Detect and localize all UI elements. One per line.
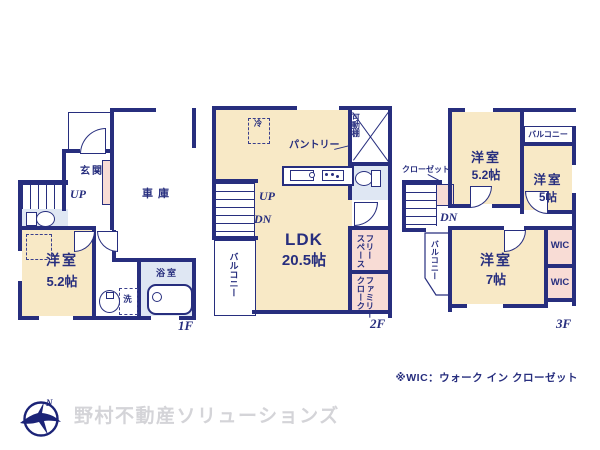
window xyxy=(18,250,22,282)
laundry-label: 洗 xyxy=(120,294,135,305)
svg-text:N: N xyxy=(45,398,53,408)
wic-2-label: WIC xyxy=(548,277,572,289)
garage-label: 車庫 xyxy=(134,188,182,201)
balcony-top-label: バルコニー xyxy=(526,130,570,140)
wall xyxy=(572,126,576,306)
stairs-up-label-2f: UP xyxy=(259,190,275,203)
family-closet-label: ファミリークローク xyxy=(356,276,374,312)
stairs-down-label-2f: DN xyxy=(254,213,271,226)
wall xyxy=(18,180,68,184)
window xyxy=(38,316,74,320)
entrance-label: 玄関 xyxy=(72,166,112,178)
wic-note: ※WIC：ウォーク イン クローゼット xyxy=(396,373,578,384)
wall xyxy=(520,210,524,214)
wall xyxy=(448,226,504,230)
family-closet-col1: ファミリー xyxy=(365,276,374,312)
stairs-down-label-3f: DN xyxy=(440,211,457,224)
wall xyxy=(112,258,196,262)
bathtub-drain-icon xyxy=(152,292,162,302)
wall xyxy=(544,264,576,268)
stairs-2f xyxy=(216,183,255,236)
wall xyxy=(448,108,452,208)
free-space-col2: スペース xyxy=(356,234,365,270)
wall xyxy=(212,106,216,240)
bedroom2-label: 洋室 xyxy=(528,174,568,188)
ldk-size-label: 20.5帖 xyxy=(266,252,342,270)
wall xyxy=(192,258,196,320)
free-space-label: フリースペース xyxy=(356,234,374,270)
wall xyxy=(212,236,258,240)
floor-1-label: 1F xyxy=(178,319,193,333)
wall xyxy=(348,270,392,274)
wall xyxy=(548,210,576,214)
floor-2-label: 2F xyxy=(370,317,385,331)
bedroom3-size: 7帖 xyxy=(466,272,526,287)
family-closet-col2: クローク xyxy=(356,276,365,312)
bedroom1-label: 洋室 xyxy=(456,150,516,165)
stairs-3f xyxy=(406,184,437,226)
stove-burner-icon xyxy=(331,173,334,176)
wall xyxy=(62,149,80,153)
floor-plan-sheet: 玄関 車庫 UP 洋室 5.2帖 浴室 洗 1F xyxy=(0,0,600,450)
fridge-label: 冷 xyxy=(248,119,268,129)
free-space-col1: フリー xyxy=(365,234,374,270)
wic-1-label: WIC xyxy=(548,240,572,252)
wall xyxy=(492,204,524,208)
bedroom-size-1f: 5.2帖 xyxy=(30,274,94,289)
wall xyxy=(348,226,392,230)
wall xyxy=(348,162,392,166)
wall xyxy=(192,108,196,148)
wall xyxy=(448,204,470,208)
wall xyxy=(388,106,392,318)
bedroom-label-1f: 洋室 xyxy=(30,252,94,268)
shelf-label: 可動棚 xyxy=(351,113,359,161)
washbasin-faucet-icon xyxy=(106,292,114,299)
window xyxy=(466,304,504,308)
wall xyxy=(18,226,96,230)
wall xyxy=(402,180,406,232)
ldk-label: LDK xyxy=(270,230,338,250)
bedroom52-door-arc xyxy=(470,186,492,208)
wall xyxy=(402,180,442,184)
bedroom2-size: 5帖 xyxy=(528,192,568,205)
balcony-label-2f: バルコニー xyxy=(228,252,237,306)
window xyxy=(296,106,340,110)
wall xyxy=(448,226,452,312)
stove-burner-icon xyxy=(336,175,339,178)
wall xyxy=(544,298,576,302)
balcony-left-label: バルコニー xyxy=(430,240,438,290)
wall xyxy=(212,179,258,183)
window xyxy=(464,108,494,112)
wall xyxy=(544,226,576,230)
pantry-label: パントリー xyxy=(289,141,340,152)
company-name: 野村不動産ソリューションズ xyxy=(74,407,340,427)
stairs-up-label-1f: UP xyxy=(70,188,86,201)
wall xyxy=(520,142,576,146)
bathroom-label: 浴室 xyxy=(148,268,186,279)
bedroom3-label: 洋室 xyxy=(466,252,526,268)
wall xyxy=(524,226,544,230)
window xyxy=(150,316,180,320)
wall xyxy=(110,108,156,112)
wall xyxy=(402,228,426,232)
company-logo-icon: N xyxy=(17,395,65,445)
kitchen-faucet-icon xyxy=(309,172,315,178)
bedroom1-size: 5.2帖 xyxy=(456,168,516,182)
closet-label: クローゼット xyxy=(402,166,450,174)
stove-burner-icon xyxy=(325,173,328,176)
window xyxy=(572,164,576,194)
toilet-bowl-icon xyxy=(36,211,55,227)
floor-3-label: 3F xyxy=(556,317,571,331)
wall xyxy=(520,108,524,214)
toilet-tank-icon-2f xyxy=(371,170,381,187)
